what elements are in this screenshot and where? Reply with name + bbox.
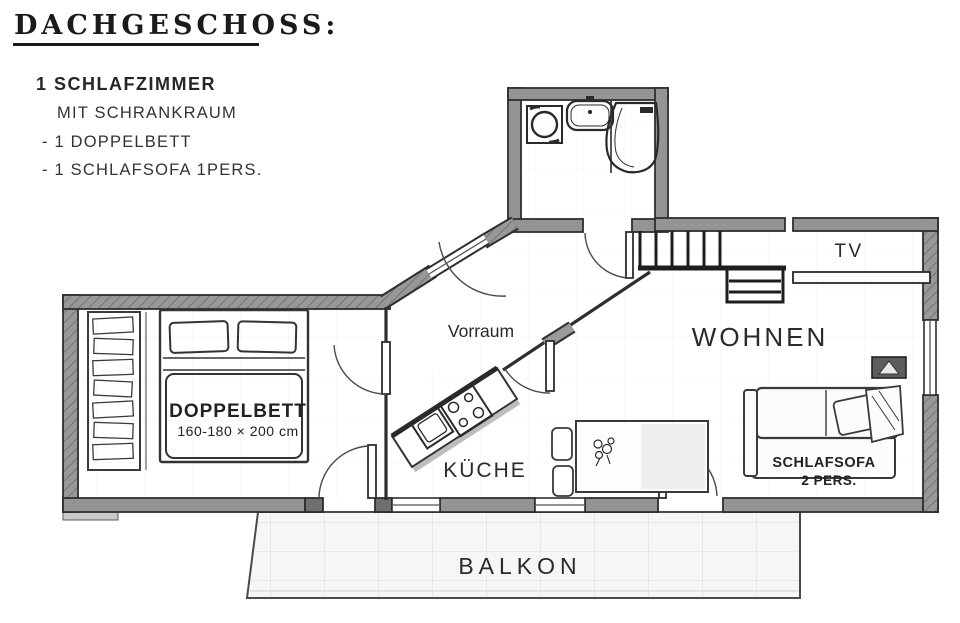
wohnen-label: WOHNEN xyxy=(692,322,828,352)
wall-bedroom-top xyxy=(63,295,390,309)
vorraum-label: Vorraum xyxy=(448,321,514,341)
sofa-armrest xyxy=(744,390,757,476)
stair-lower-run xyxy=(727,269,783,302)
wall-right-upper xyxy=(923,218,938,320)
bed-size-label: 160-180 × 200 cm xyxy=(177,423,298,439)
kueche-label: KÜCHE xyxy=(443,459,527,482)
balcony-label: BALKON xyxy=(458,553,581,579)
wall-bottom-1 xyxy=(63,498,305,512)
wall-bottom-2 xyxy=(440,498,535,512)
dining-set xyxy=(552,421,708,496)
sofa-capacity-label: 2 PERS. xyxy=(801,473,856,488)
feature-line-1: 1 SCHLAFZIMMER xyxy=(36,74,216,94)
wall-left xyxy=(63,295,78,512)
wall-bottom-pier1 xyxy=(305,498,323,512)
window-right xyxy=(924,320,936,395)
feature-line-2: MIT SCHRANKRAUM xyxy=(57,104,237,122)
bathroom-door-leaf xyxy=(626,232,633,278)
window-diagonal xyxy=(429,239,486,274)
feature-line-3: - 1 DOPPELBETT xyxy=(42,133,192,151)
wall-bottom-pier2 xyxy=(375,498,392,512)
wall-right-lower xyxy=(923,395,938,512)
bedroom-balcony-door-leaf xyxy=(368,445,376,498)
sofa-label: SCHLAFSOFA xyxy=(772,455,875,471)
tv-sideboard xyxy=(793,272,930,283)
tv-label: TV xyxy=(834,241,863,262)
window-bottom-1 xyxy=(392,498,440,512)
floorplan-page: BALKON xyxy=(0,0,960,623)
page-title: DACHGESCHOSS: xyxy=(14,10,339,41)
wall-living-top-2 xyxy=(793,218,938,231)
living-door-leaf xyxy=(546,341,554,391)
bathroom-floor xyxy=(521,100,655,219)
title-underline xyxy=(13,43,259,46)
wall-bottom-4 xyxy=(723,498,938,512)
feature-line-4: - 1 SCHLAFSOFA 1PERS. xyxy=(42,161,263,179)
bed-label: DOPPELBETT xyxy=(169,401,307,422)
balcony: BALKON xyxy=(247,512,800,598)
plant-icon xyxy=(872,357,906,378)
wall-bottom-3 xyxy=(585,498,658,512)
bedroom-door-leaf xyxy=(382,342,390,394)
wall-living-top-1 xyxy=(655,218,785,231)
floorplan-drawing: BALKON xyxy=(0,0,960,623)
window-bottom-2 xyxy=(535,498,585,512)
